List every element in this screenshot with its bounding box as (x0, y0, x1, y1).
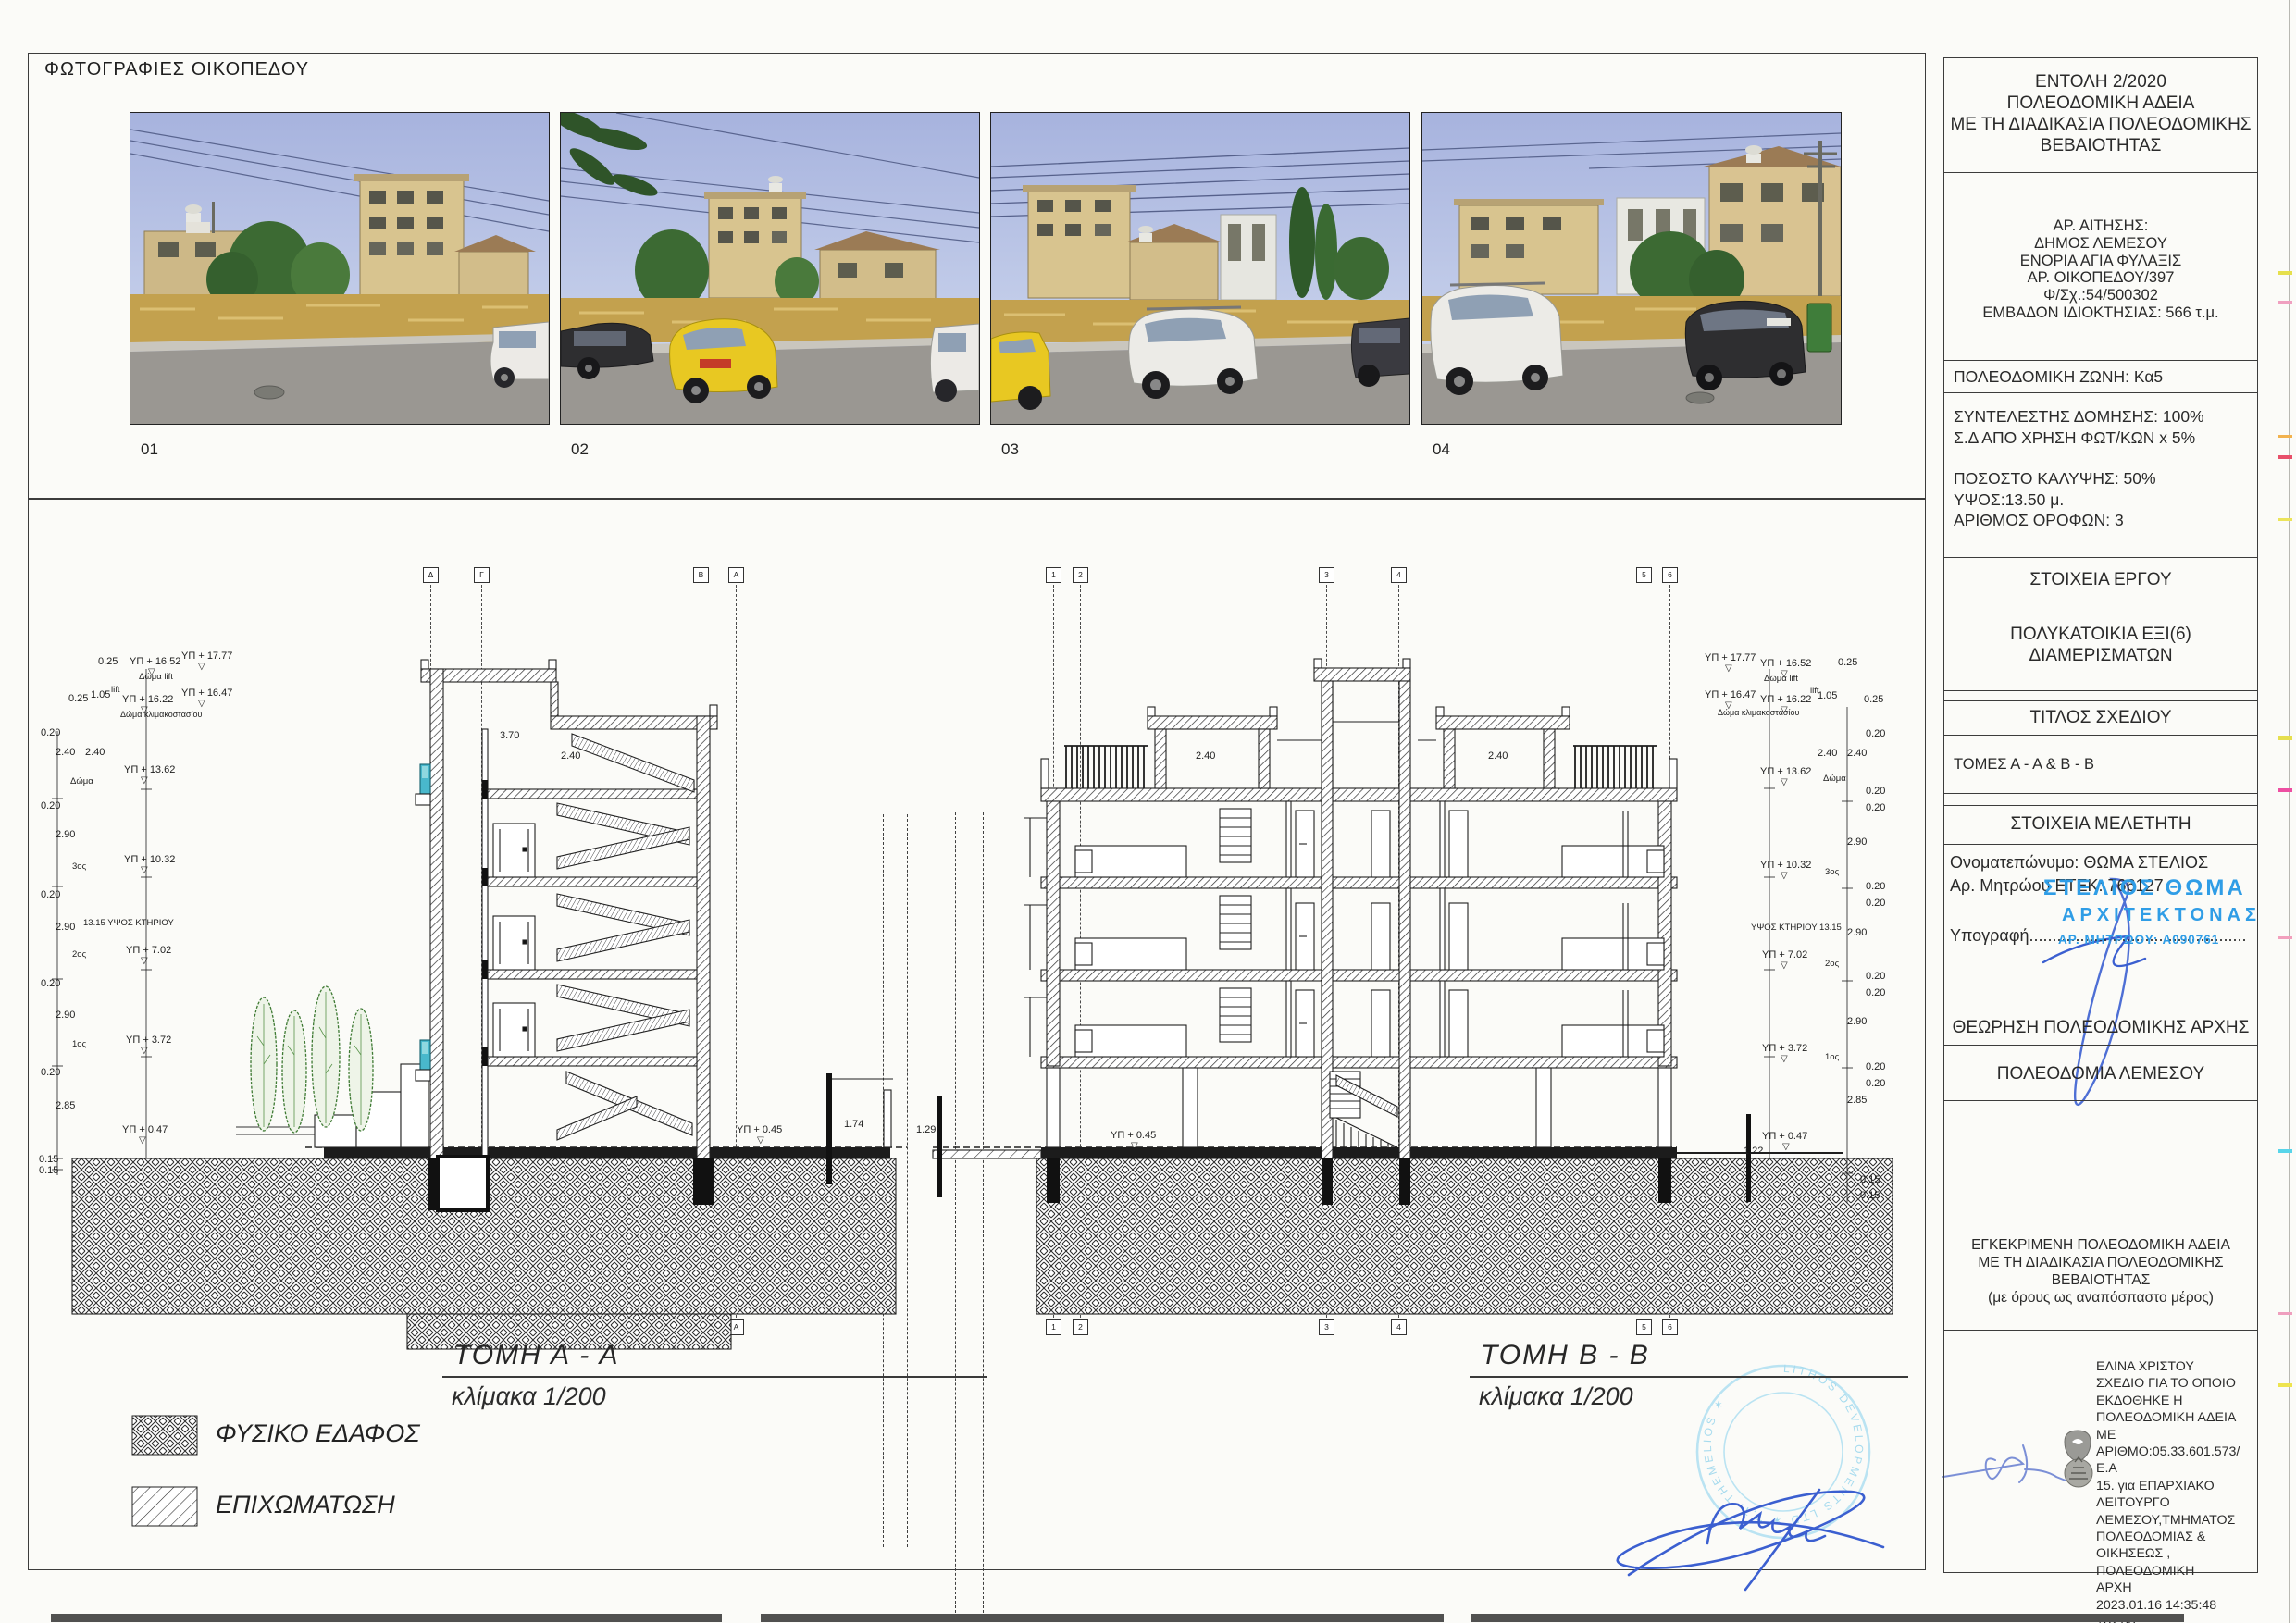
text-line: ΠΟΣΟΣΤΟ ΚΑΛΥΨΗΣ: 50% (1954, 468, 2257, 489)
text-line: ΜΕ ΤΗ ΔΙΑΔΙΚΑΣΙΑ ΠΟΛΕΟΔΟΜΙΚΗΣ (1944, 1254, 2257, 1271)
titleblock-approved: ΕΓΚΕΚΡΙΜΕΝΗ ΠΟΛΕΟΔΟΜΙΚΗ ΑΔΕΙΑΜΕ ΤΗ ΔΙΑΔΙ… (1943, 1101, 2258, 1331)
photo-3-scene (991, 113, 1409, 424)
photo-label-2: 02 (571, 440, 589, 459)
text-line: ΑΡ. ΟΙΚΟΠΕΔΟΥ/397 (1944, 269, 2257, 287)
text-line: ΕΓΚΕΚΡΙΜΕΝΗ ΠΟΛΕΟΔΟΜΙΚΗ ΑΔΕΙΑ (1944, 1236, 2257, 1254)
drawing-sheet: ΦΩΤΟΓΡΑΦΙΕΣ ΟΙΚΟΠΕΔΟΥ (0, 0, 2296, 1623)
titleblock-authority: ΠΟΛΕΟΔΟΜΙΑ ΛΕΜΕΣΟΥ (1943, 1046, 2258, 1101)
text-line: ΛΕΜΕΣΟΥ,ΤΜΗΜΑΤΟΣ (2096, 1512, 2255, 1529)
scan-tick (2278, 936, 2292, 939)
titleblock-zone: ΠΟΛΕΟΔΟΜΙΚΗ ΖΩΝΗ: Κα5 (1943, 361, 2258, 393)
scan-tick (2278, 518, 2292, 521)
section-b-underline (1470, 1376, 1908, 1378)
green-bin (1807, 304, 1831, 352)
designer-name: Ονοματεπώνυμο: ΘΩΜΑ ΣΤΕΛΙΟΣ (1950, 853, 2257, 873)
section-b-scale: κλίμακα 1/200 (1479, 1382, 1633, 1411)
black-sedan (1685, 301, 1806, 390)
legend-natural-ground: ΦΥΣΙΚΟ ΕΔΑΦΟΣ (216, 1419, 419, 1448)
text-line: 15. για ΕΠΑΡΧΙΑΚΟ (2096, 1478, 2255, 1494)
text-line: ΣΥΝΤΕΛΕΣΤΗΣ ΔΟΜΗΣΗΣ: 100% (1954, 406, 2257, 427)
text-line: ΑΡΧΗ (2096, 1580, 2255, 1596)
text-line: (με όρους ως αναπόσπαστο μέρος) (1944, 1289, 2257, 1307)
titleblock-designer-header: ΣΤΟΙΧΕΙΑ ΜΕΛΕΤΗΤΗ (1943, 806, 2258, 845)
scan-band-gap (722, 1614, 761, 1622)
photo-label-1: 01 (141, 440, 158, 459)
yellow-car-edge (991, 332, 1050, 410)
white-van (930, 324, 979, 402)
text-line: ΥΨΟΣ:13.50 μ. (1954, 489, 2257, 511)
scan-tick (2278, 788, 2292, 792)
text-line: ΕΜΒΑΔΟΝ ΙΔΙΟΚΤΗΣΙΑΣ: 566 τ.μ. (1944, 304, 2257, 322)
sheet-edge-line (2289, 0, 2290, 1623)
architect-stamp-name: ΣΤΕΛΙΟΣ ΘΩΜΑ (2043, 875, 2246, 901)
legend-fill: ΕΠΙΧΩΜΑΤΩΣΗ (216, 1491, 395, 1519)
boundary-line (983, 812, 984, 1617)
text-line: ΕΚΔΟΘΗΚΕ Η (2096, 1393, 2255, 1409)
scan-bottom-band (51, 1614, 2184, 1622)
scan-tick (2278, 1149, 2292, 1153)
text-line: ΕΝΟΡΙΑ ΑΓΙΑ ΦΥΛΑΞΙΣ (1944, 253, 2257, 270)
text-line (1954, 448, 2257, 468)
titleblock-application: ΑΡ. ΑΙΤΗΣΗΣ:ΔΗΜΟΣ ΛΕΜΕΣΟΥΕΝΟΡΙΑ ΑΓΙΑ ΦΥΛ… (1943, 173, 2258, 361)
scan-tick (2278, 736, 2292, 740)
photo-2-scene (561, 113, 979, 424)
photo-label-4: 04 (1433, 440, 1450, 459)
site-photo-4 (1421, 112, 1842, 425)
photos-panel-title: ΦΩΤΟΓΡΑΦΙΕΣ ΟΙΚΟΠΕΔΟΥ (44, 59, 309, 81)
titleblock-digital-signature: ΕΛΙΝΑ ΧΡΙΣΤΟΥΣΧΕΔΙΟ ΓΙΑ ΤΟ ΟΠΟΙΟΕΚΔΟΘΗΚΕ… (1943, 1331, 2258, 1573)
section-a-title: ΤΟΜΗ Α - Α (453, 1340, 619, 1371)
boundary-line (907, 814, 908, 1547)
text-line: ΔΗΜΟΣ ΛΕΜΕΣΟΥ (1944, 235, 2257, 253)
white-suv (1129, 307, 1258, 399)
white-suv-left (1431, 283, 1563, 395)
titleblock-designer: Ονοματεπώνυμο: ΘΩΜΑ ΣΤΕΛΙΟΣ Αρ. Μητρώου … (1943, 845, 2258, 1010)
text-line: Σ.Δ ΑΠΟ ΧΡΗΣΗ ΦΩΤ/ΚΩΝ x 5% (1954, 427, 2257, 449)
titleblock-project-header: ΣΤΟΙΧΕΙΑ ΕΡΓΟΥ (1943, 558, 2258, 601)
scan-tick (2278, 1312, 2292, 1315)
titleblock-authority-header: ΘΕΩΡΗΣΗ ΠΟΛΕΟΔΟΜΙΚΗΣ ΑΡΧΗΣ (1943, 1010, 2258, 1046)
text-line: ΠΟΛΥΚΑΤΟΙΚΙΑ ΕΞΙ(6) (1944, 624, 2257, 645)
drawing-panel-frame (28, 498, 1926, 1570)
photo-1-scene (130, 113, 549, 424)
boundary-line (883, 814, 884, 1547)
white-car (490, 322, 549, 388)
text-line: ΠΟΛΕΟΔΟΜΙΑΣ & (2096, 1529, 2255, 1545)
text-line: ΔΙΑΜΕΡΙΣΜΑΤΩΝ (1944, 645, 2257, 666)
photo-label-3: 03 (1001, 440, 1019, 459)
text-line: ΕΛΙΝΑ ΧΡΙΣΤΟΥ (2096, 1358, 2255, 1375)
site-photo-3 (990, 112, 1410, 425)
titleblock-permit: ΕΝΤΟΛΗ 2/2020ΠΟΛΕΟΔΟΜΙΚΗ ΑΔΕΙΑΜΕ ΤΗ ΔΙΑΔ… (1943, 57, 2258, 173)
text-line: ΜΕ ΤΗ ΔΙΑΔΙΚΑΣΙΑ ΠΟΛΕΟΔΟΜΙΚΗΣ (1944, 114, 2257, 135)
authority-value: ΠΟΛΕΟΔΟΜΙΑ ΛΕΜΕΣΟΥ (1997, 1064, 2204, 1084)
digital-signature-text: ΕΛΙΝΑ ΧΡΙΣΤΟΥΣΧΕΔΙΟ ΓΙΑ ΤΟ ΟΠΟΙΟΕΚΔΟΘΗΚΕ… (2096, 1358, 2255, 1623)
text-line: ΒΕΒΑΙΟΤΗΤΑΣ (1944, 135, 2257, 156)
architect-stamp-title: ΑΡΧΙΤΕΚΤΟΝΑΣ (2062, 905, 2261, 926)
scan-tick (2278, 455, 2292, 459)
scan-tick (2278, 435, 2292, 438)
architect-stamp-reg: ΑΡ. ΜΗΤΡΩΟΥ: Α090761 (2058, 933, 2219, 947)
titleblock-project: ΠΟΛΥΚΑΤΟΙΚΙΑ ΕΞΙ(6)ΔΙΑΜΕΡΙΣΜΑΤΩΝ (1943, 601, 2258, 691)
section-b-title: ΤΟΜΗ Β - Β (1481, 1340, 1650, 1371)
text-line: ΟΙΚΗΣΕΩΣ , ΠΟΛΕΟΔΟΜΙΚΗ (2096, 1545, 2255, 1580)
text-line: Φ/Σχ.:54/500302 (1944, 287, 2257, 304)
text-line: ΕΝΤΟΛΗ 2/2020 (1944, 71, 2257, 93)
titleblock-divider (1943, 691, 2258, 701)
site-photo-1 (130, 112, 550, 425)
scan-tick (2278, 1383, 2292, 1387)
scan-band-gap (1444, 1614, 1471, 1622)
scan-tick (2278, 301, 2292, 304)
yellow-car (670, 319, 777, 403)
photo-4-scene (1422, 113, 1841, 424)
titleblock-drawing-title: ΤΟΜΕΣ Α - Α & Β - Β (1943, 736, 2258, 794)
text-line: ΠΟΛΕΟΔΟΜΙΚΗ ΑΔΕΙΑ ΜΕ (2096, 1409, 2255, 1443)
scan-tick (2278, 271, 2292, 275)
text-line: ΠΟΛΕΟΔΟΜΙΚΗ ΑΔΕΙΑ (1944, 93, 2257, 114)
section-a-scale: κλίμακα 1/200 (452, 1382, 606, 1411)
text-line: ΒΕΒΑΙΟΤΗΤΑΣ (1944, 1271, 2257, 1289)
drawing-title-value: ΤΟΜΕΣ Α - Α & Β - Β (1954, 756, 2094, 773)
text-line: ΑΡΙΘΜΟ:05.33.601.573/Ε.Α (2096, 1443, 2255, 1478)
titleblock-drawing-title-header: ΤΙΤΛΟΣ ΣΧΕΔΙΟΥ (1943, 701, 2258, 736)
text-line: ΑΡ. ΑΙΤΗΣΗΣ: (1944, 217, 2257, 235)
text-line: ΣΧΕΔΙΟ ΓΙΑ ΤΟ ΟΠΟΙΟ (2096, 1375, 2255, 1392)
text-line: ΛΕΙΤΟΥΡΓΟ (2096, 1494, 2255, 1511)
titleblock-coefficients: ΣΥΝΤΕΛΕΣΤΗΣ ΔΟΜΗΣΗΣ: 100%Σ.Δ ΑΠΟ ΧΡΗΣΗ Φ… (1943, 393, 2258, 558)
section-a-underline (442, 1376, 987, 1378)
titleblock-divider (1943, 794, 2258, 806)
site-photo-2 (560, 112, 980, 425)
text-line: ΑΡΙΘΜΟΣ ΟΡΟΦΩΝ: 3 (1954, 510, 2257, 531)
zone-value: ΠΟΛΕΟΔΟΜΙΚΗ ΖΩΝΗ: Κα5 (1954, 367, 2163, 386)
boundary-line (955, 812, 956, 1617)
